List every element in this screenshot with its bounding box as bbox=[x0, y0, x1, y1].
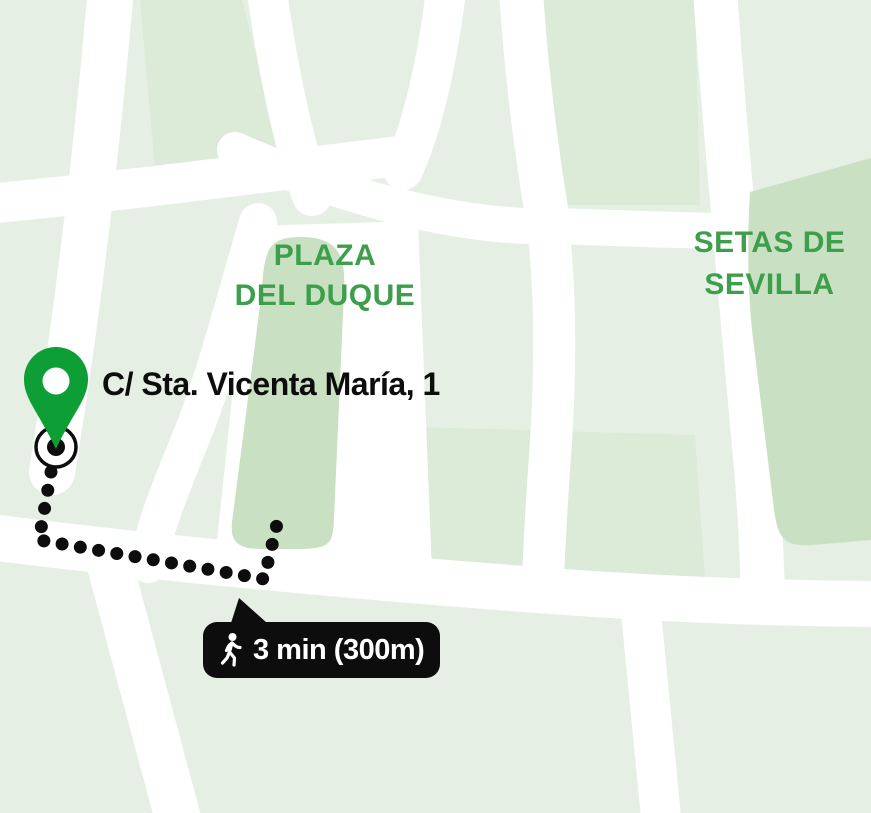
label-line: PLAZA bbox=[190, 236, 460, 276]
label-setas-de-sevilla: SETAS DE SEVILLA bbox=[652, 222, 871, 306]
route-duration-text: 3 min (300m) bbox=[253, 634, 424, 667]
label-line: SETAS DE bbox=[652, 222, 871, 264]
road bbox=[543, 209, 554, 584]
speech-bubble-tail-icon bbox=[231, 598, 269, 623]
label-line: SEVILLA bbox=[652, 264, 871, 306]
road bbox=[641, 612, 662, 813]
map-canvas[interactable]: PLAZA DEL DUQUE SETAS DE SEVILLA C/ Sta.… bbox=[0, 0, 871, 813]
pin-hole bbox=[43, 368, 70, 395]
route-info-badge: 3 min (300m) bbox=[203, 622, 440, 678]
map-base bbox=[0, 0, 871, 813]
walking-person-icon bbox=[219, 632, 243, 668]
destination-address: C/ Sta. Vicenta María, 1 bbox=[102, 362, 440, 406]
label-line: DEL DUQUE bbox=[190, 276, 460, 316]
road bbox=[520, 0, 546, 209]
label-plaza-del-duque: PLAZA DEL DUQUE bbox=[190, 236, 460, 316]
